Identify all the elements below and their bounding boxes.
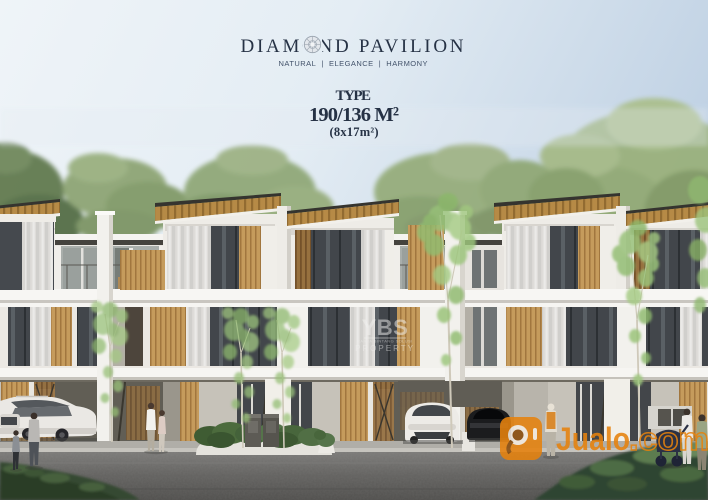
svg-text:PROPERTY: PROPERTY bbox=[355, 344, 415, 353]
svg-text:YBS: YBS bbox=[362, 315, 409, 340]
svg-text:190/136 M²: 190/136 M² bbox=[309, 104, 399, 126]
svg-text:.com: .com bbox=[629, 421, 708, 457]
svg-text:DIAMOND PAVILION: DIAMOND PAVILION bbox=[241, 36, 468, 57]
svg-text:NATURAL | ELEGANCE | HARMO: NATURAL | ELEGANCE | HARMONY bbox=[279, 59, 430, 68]
svg-text:TYPE: TYPE bbox=[336, 88, 373, 104]
svg-text:Jualo: Jualo bbox=[556, 421, 630, 457]
svg-text:(8x17m²): (8x17m²) bbox=[330, 125, 379, 139]
svg-text:KARYA BINTANG SOLUSI: KARYA BINTANG SOLUSI bbox=[357, 339, 412, 344]
